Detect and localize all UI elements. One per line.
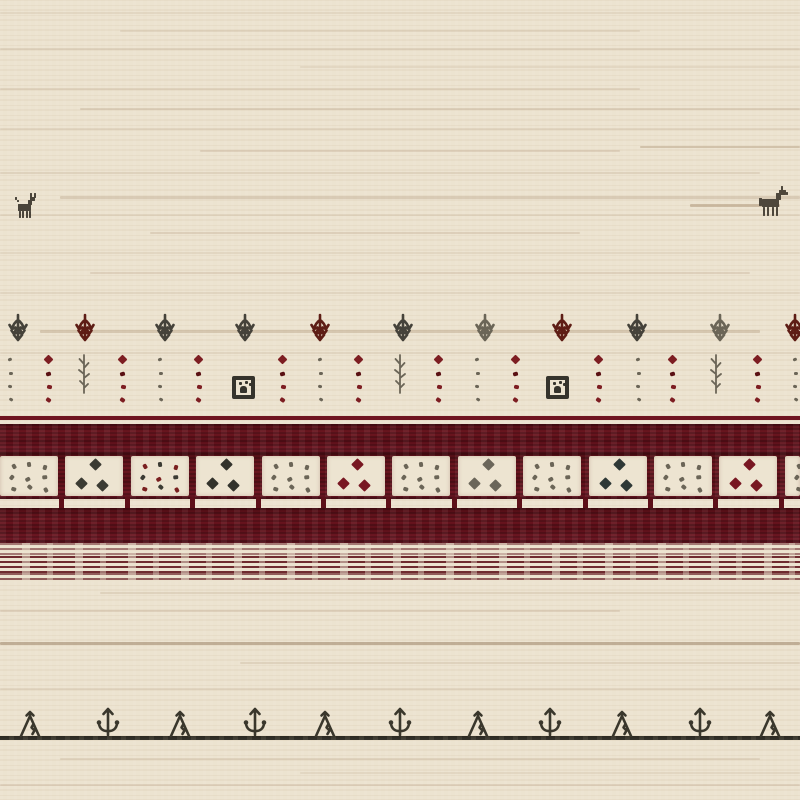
dot-column-mark xyxy=(476,372,480,376)
dot-column-mark xyxy=(8,385,13,389)
anchor-plant-motif xyxy=(537,706,563,738)
anchor-plant-motif xyxy=(95,706,121,738)
figure-motif xyxy=(757,710,783,738)
dot-column-mark xyxy=(356,385,362,390)
dot-column-mark xyxy=(120,385,126,390)
square-dot xyxy=(142,487,148,492)
square-dot xyxy=(566,475,571,479)
dot-column-mark xyxy=(512,397,518,403)
dot-column-mark xyxy=(754,371,760,376)
square-dot xyxy=(404,487,410,492)
pattern-square-diamonds xyxy=(196,456,254,496)
dot-column-diamond xyxy=(433,355,443,365)
motif-stroke xyxy=(477,315,494,340)
striated-weave-zone xyxy=(0,556,800,573)
rug-photo xyxy=(0,0,800,800)
dot-column-mark xyxy=(669,371,675,376)
square-dot xyxy=(273,463,279,469)
weave-striation xyxy=(0,214,800,216)
motif-stroke xyxy=(246,709,264,735)
weave-striation xyxy=(0,252,800,254)
motif-stroke xyxy=(761,712,779,736)
weave-striation xyxy=(0,642,800,645)
square-dot xyxy=(534,463,540,469)
tree-branch-motif xyxy=(550,313,574,347)
motif-stroke xyxy=(99,709,117,735)
dot-column-mark xyxy=(794,372,798,376)
weave-striation xyxy=(150,232,580,234)
motif-stroke xyxy=(469,712,487,736)
motif-stroke xyxy=(312,315,329,340)
square-dot xyxy=(419,484,425,490)
dot-column-diamond xyxy=(277,355,287,365)
dot-column-mark xyxy=(355,371,361,376)
square-diamond xyxy=(489,479,502,492)
dot-column-mark xyxy=(512,371,518,376)
weave-striation xyxy=(0,88,640,90)
motif-knob xyxy=(389,720,394,725)
square-dot xyxy=(140,474,146,480)
tree-branch-motif xyxy=(391,313,415,347)
motif-stroke xyxy=(391,709,409,735)
dot-column-mark xyxy=(754,397,760,403)
motif-stroke xyxy=(237,315,254,340)
dot-column-mark xyxy=(636,357,641,362)
dot-column-mark xyxy=(755,385,761,390)
square-dot xyxy=(173,475,178,479)
dot-column-mark xyxy=(637,372,641,376)
motif-stroke xyxy=(395,315,412,340)
square-diamond xyxy=(337,477,350,490)
sprig-motif xyxy=(708,353,724,397)
tree-branch-motif xyxy=(783,313,800,347)
animal-knot xyxy=(776,207,778,216)
dot-column-mark xyxy=(158,357,163,362)
square-dot xyxy=(663,474,669,480)
animal-knot xyxy=(772,207,774,216)
pattern-square-dots xyxy=(0,456,58,496)
motif-knob xyxy=(97,720,102,725)
square-dot xyxy=(287,476,293,482)
square-dot xyxy=(27,462,32,467)
animal-horse-motif xyxy=(757,185,792,218)
tree-branch-motif xyxy=(73,313,97,347)
box-motif-dot xyxy=(559,381,562,384)
dot-column-mark xyxy=(636,397,641,402)
dot-column-mark xyxy=(159,372,163,376)
tree-branch-motif xyxy=(625,313,649,347)
weave-striation xyxy=(0,688,800,690)
square-dot xyxy=(679,476,685,482)
weave-striation xyxy=(240,662,800,664)
square-dot xyxy=(43,475,48,479)
dot-column-mark xyxy=(793,397,798,402)
square-dot xyxy=(566,487,572,493)
motif-stroke xyxy=(541,709,559,735)
animal-knot xyxy=(30,193,32,198)
dot-column-diamond xyxy=(193,355,203,365)
weave-striation xyxy=(0,610,620,612)
dot-column-mark xyxy=(195,397,201,403)
square-diamond xyxy=(90,458,103,471)
dot-column-mark xyxy=(158,397,163,402)
box-motif-dot xyxy=(563,383,566,386)
weave-striation xyxy=(300,772,800,774)
weave-striation xyxy=(0,784,800,786)
dot-column-diamond xyxy=(43,355,53,365)
animal-knot xyxy=(19,211,21,218)
square-diamond xyxy=(613,458,626,471)
tree-branch-motif xyxy=(233,313,257,347)
motif-knob xyxy=(244,720,249,725)
box-motif-dot xyxy=(553,382,556,385)
tree-branch-motif xyxy=(6,313,30,347)
square-dot xyxy=(304,465,309,470)
maroon-band-bottom xyxy=(0,508,800,543)
weave-striation xyxy=(0,128,800,130)
square-dot xyxy=(419,462,424,467)
dot-column-mark xyxy=(8,357,13,362)
square-dot xyxy=(697,475,702,479)
square-dot xyxy=(436,487,442,493)
motif-stroke xyxy=(613,712,631,736)
square-diamond xyxy=(620,479,633,492)
square-dot xyxy=(665,487,671,492)
motif-knob xyxy=(407,720,412,725)
weave-striation xyxy=(640,146,800,148)
box-motif-dot xyxy=(245,381,248,384)
square-dot xyxy=(11,463,17,469)
anchor-plant-motif xyxy=(242,706,268,738)
animal-knot xyxy=(17,200,19,202)
square-dot xyxy=(681,484,687,490)
tree-branch-motif xyxy=(708,313,732,347)
pattern-square-dots xyxy=(131,456,189,496)
dot-column-mark xyxy=(319,372,323,376)
square-diamond xyxy=(744,458,757,471)
dot-column-mark xyxy=(196,385,202,390)
motif-knob xyxy=(262,720,267,725)
sprig-motif xyxy=(392,353,408,397)
box-motif-blob xyxy=(240,386,247,393)
weave-striation xyxy=(120,30,640,32)
pattern-square-dots xyxy=(392,456,450,496)
dot-column-diamond xyxy=(752,355,762,365)
weave-striation xyxy=(200,150,620,152)
square-dot xyxy=(273,487,279,492)
pattern-square-dots xyxy=(523,456,581,496)
square-diamond xyxy=(97,479,110,492)
motif-knob xyxy=(115,720,120,725)
animal-knot xyxy=(15,197,17,200)
motif-stroke xyxy=(691,709,709,735)
square-dot xyxy=(11,487,17,492)
motif-stroke xyxy=(10,315,27,340)
square-dot xyxy=(401,474,407,480)
square-dot xyxy=(435,475,440,479)
dot-column-mark xyxy=(279,371,285,376)
motif-stroke xyxy=(316,712,334,736)
weave-striation xyxy=(60,196,800,199)
dot-column-diamond xyxy=(510,355,520,365)
square-dot xyxy=(417,476,423,482)
dot-column-mark xyxy=(436,385,442,390)
square-dot xyxy=(532,474,538,480)
animal-knot xyxy=(26,211,28,218)
animal-goat-motif xyxy=(13,193,39,225)
box-motif xyxy=(546,376,569,399)
motif-stroke xyxy=(77,315,94,340)
square-diamond xyxy=(482,458,495,471)
pattern-square-dots xyxy=(262,456,320,496)
motif-knob xyxy=(557,720,562,725)
animal-knot xyxy=(762,199,779,207)
pattern-square-diamonds xyxy=(458,456,516,496)
dot-column-mark xyxy=(793,385,798,389)
dot-column-mark xyxy=(279,397,285,403)
weave-striation xyxy=(0,48,800,50)
pattern-square-diamonds xyxy=(589,456,647,496)
dot-column-mark xyxy=(318,397,323,402)
square-dot xyxy=(794,474,800,480)
dot-column-mark xyxy=(670,385,676,390)
dot-column-mark xyxy=(355,397,361,403)
animal-knot xyxy=(18,204,31,211)
anchor-plant-motif xyxy=(687,706,713,738)
dot-column-mark xyxy=(46,385,52,390)
motif-stroke xyxy=(554,315,571,340)
dot-column-mark xyxy=(9,372,13,376)
square-dot xyxy=(566,465,571,470)
dot-column-diamond xyxy=(117,355,127,365)
figure-motif xyxy=(167,710,193,738)
square-dot xyxy=(158,462,163,467)
square-dot xyxy=(156,476,162,482)
animal-knot xyxy=(763,207,765,216)
square-dot xyxy=(25,476,31,482)
dot-column-mark xyxy=(636,385,641,389)
animal-knot xyxy=(22,211,24,218)
striated-weave-zone xyxy=(0,573,800,582)
square-dot xyxy=(9,474,15,480)
box-motif-dot xyxy=(239,382,242,385)
motif-stroke xyxy=(711,355,721,393)
motif-stroke xyxy=(395,355,405,393)
box-motif xyxy=(232,376,255,399)
square-dot xyxy=(550,462,555,467)
weave-striation xyxy=(80,108,800,110)
tree-branch-motif xyxy=(153,313,177,347)
animal-knot xyxy=(759,198,762,206)
square-diamond xyxy=(76,477,89,490)
dot-column-diamond xyxy=(593,355,603,365)
square-dot xyxy=(665,463,671,469)
square-diamond xyxy=(206,477,219,490)
motif-stroke xyxy=(157,315,174,340)
weave-striation xyxy=(0,292,800,294)
dot-column-mark xyxy=(195,371,201,376)
thin-maroon-line xyxy=(0,416,800,420)
maroon-band-top xyxy=(0,424,800,453)
motif-stroke xyxy=(712,315,729,340)
tree-branch-motif xyxy=(308,313,332,347)
square-dot xyxy=(550,484,556,490)
square-dot xyxy=(696,465,701,470)
square-dot xyxy=(271,474,277,480)
dot-column-mark xyxy=(8,397,13,402)
dot-column-mark xyxy=(475,397,480,402)
dot-column-mark xyxy=(318,385,323,389)
motif-knob xyxy=(707,720,712,725)
square-dot xyxy=(548,476,554,482)
box-motif-dot xyxy=(249,383,252,386)
figure-motif xyxy=(17,710,43,738)
square-dot xyxy=(305,487,311,493)
dot-column-mark xyxy=(595,371,601,376)
dot-column-mark xyxy=(475,385,480,389)
motif-stroke xyxy=(629,315,646,340)
weave-striation xyxy=(90,272,750,274)
dot-column-mark xyxy=(280,385,286,390)
square-dot xyxy=(42,465,47,470)
dot-column-mark xyxy=(119,397,125,403)
dot-column-mark xyxy=(595,397,601,403)
square-dot xyxy=(289,484,295,490)
dot-column-mark xyxy=(45,371,51,376)
square-dot xyxy=(534,487,540,492)
pattern-square-diamonds xyxy=(65,456,123,496)
motif-stroke xyxy=(787,315,800,340)
tree-branch-motif xyxy=(473,313,497,347)
dot-column-mark xyxy=(435,397,441,403)
animal-knot xyxy=(767,207,769,216)
dot-column-mark xyxy=(435,371,441,376)
square-dot xyxy=(304,475,309,479)
figure-motif xyxy=(609,710,635,738)
dot-column-diamond xyxy=(667,355,677,365)
motif-stroke xyxy=(21,712,39,736)
square-dot xyxy=(681,462,686,467)
dot-column-mark xyxy=(158,385,163,389)
square-diamond xyxy=(351,458,364,471)
square-diamond xyxy=(358,479,371,492)
square-dot xyxy=(288,462,293,467)
figure-motif xyxy=(312,710,338,738)
animal-knot xyxy=(34,193,36,198)
weave-striation xyxy=(0,172,760,174)
sprig-motif xyxy=(76,353,92,397)
pattern-square-diamonds xyxy=(327,456,385,496)
box-motif-blob xyxy=(554,386,561,393)
square-dot xyxy=(43,487,49,493)
motif-knob xyxy=(539,720,544,725)
pattern-square-dots xyxy=(654,456,712,496)
dot-column-mark xyxy=(669,397,675,403)
square-diamond xyxy=(220,458,233,471)
weave-striation xyxy=(300,66,800,68)
pattern-square-dots xyxy=(785,456,800,496)
square-diamond xyxy=(468,477,481,490)
dot-column-mark xyxy=(513,385,519,390)
dot-column-mark xyxy=(45,397,51,403)
square-dot xyxy=(173,465,178,470)
square-dot xyxy=(142,463,148,469)
dot-column-mark xyxy=(318,357,323,362)
weave-striation xyxy=(0,12,800,14)
motif-knob xyxy=(689,720,694,725)
dot-column-mark xyxy=(793,357,798,362)
motif-stroke xyxy=(79,355,89,393)
motif-stroke xyxy=(171,712,189,736)
square-dot xyxy=(27,484,33,490)
figure-motif xyxy=(465,710,491,738)
square-diamond xyxy=(599,477,612,490)
square-dot xyxy=(435,465,440,470)
square-dot xyxy=(697,487,703,493)
animal-knot xyxy=(786,192,788,195)
animal-knot xyxy=(29,211,31,218)
pattern-square-diamonds xyxy=(719,456,777,496)
dot-column-mark xyxy=(119,371,125,376)
square-dot xyxy=(796,487,800,492)
dot-column-mark xyxy=(475,357,480,362)
animal-knot xyxy=(781,186,783,191)
square-diamond xyxy=(730,477,743,490)
weave-striation xyxy=(100,592,800,594)
striated-weave-zone xyxy=(0,543,800,556)
weave-striation xyxy=(60,758,760,760)
square-diamond xyxy=(227,479,240,492)
square-dot xyxy=(796,463,800,469)
dot-column-diamond xyxy=(353,355,363,365)
square-dot xyxy=(404,463,410,469)
dot-column-mark xyxy=(596,385,602,390)
square-dot xyxy=(174,487,180,493)
anchor-plant-motif xyxy=(387,706,413,738)
square-diamond xyxy=(751,479,764,492)
square-dot xyxy=(158,484,164,490)
